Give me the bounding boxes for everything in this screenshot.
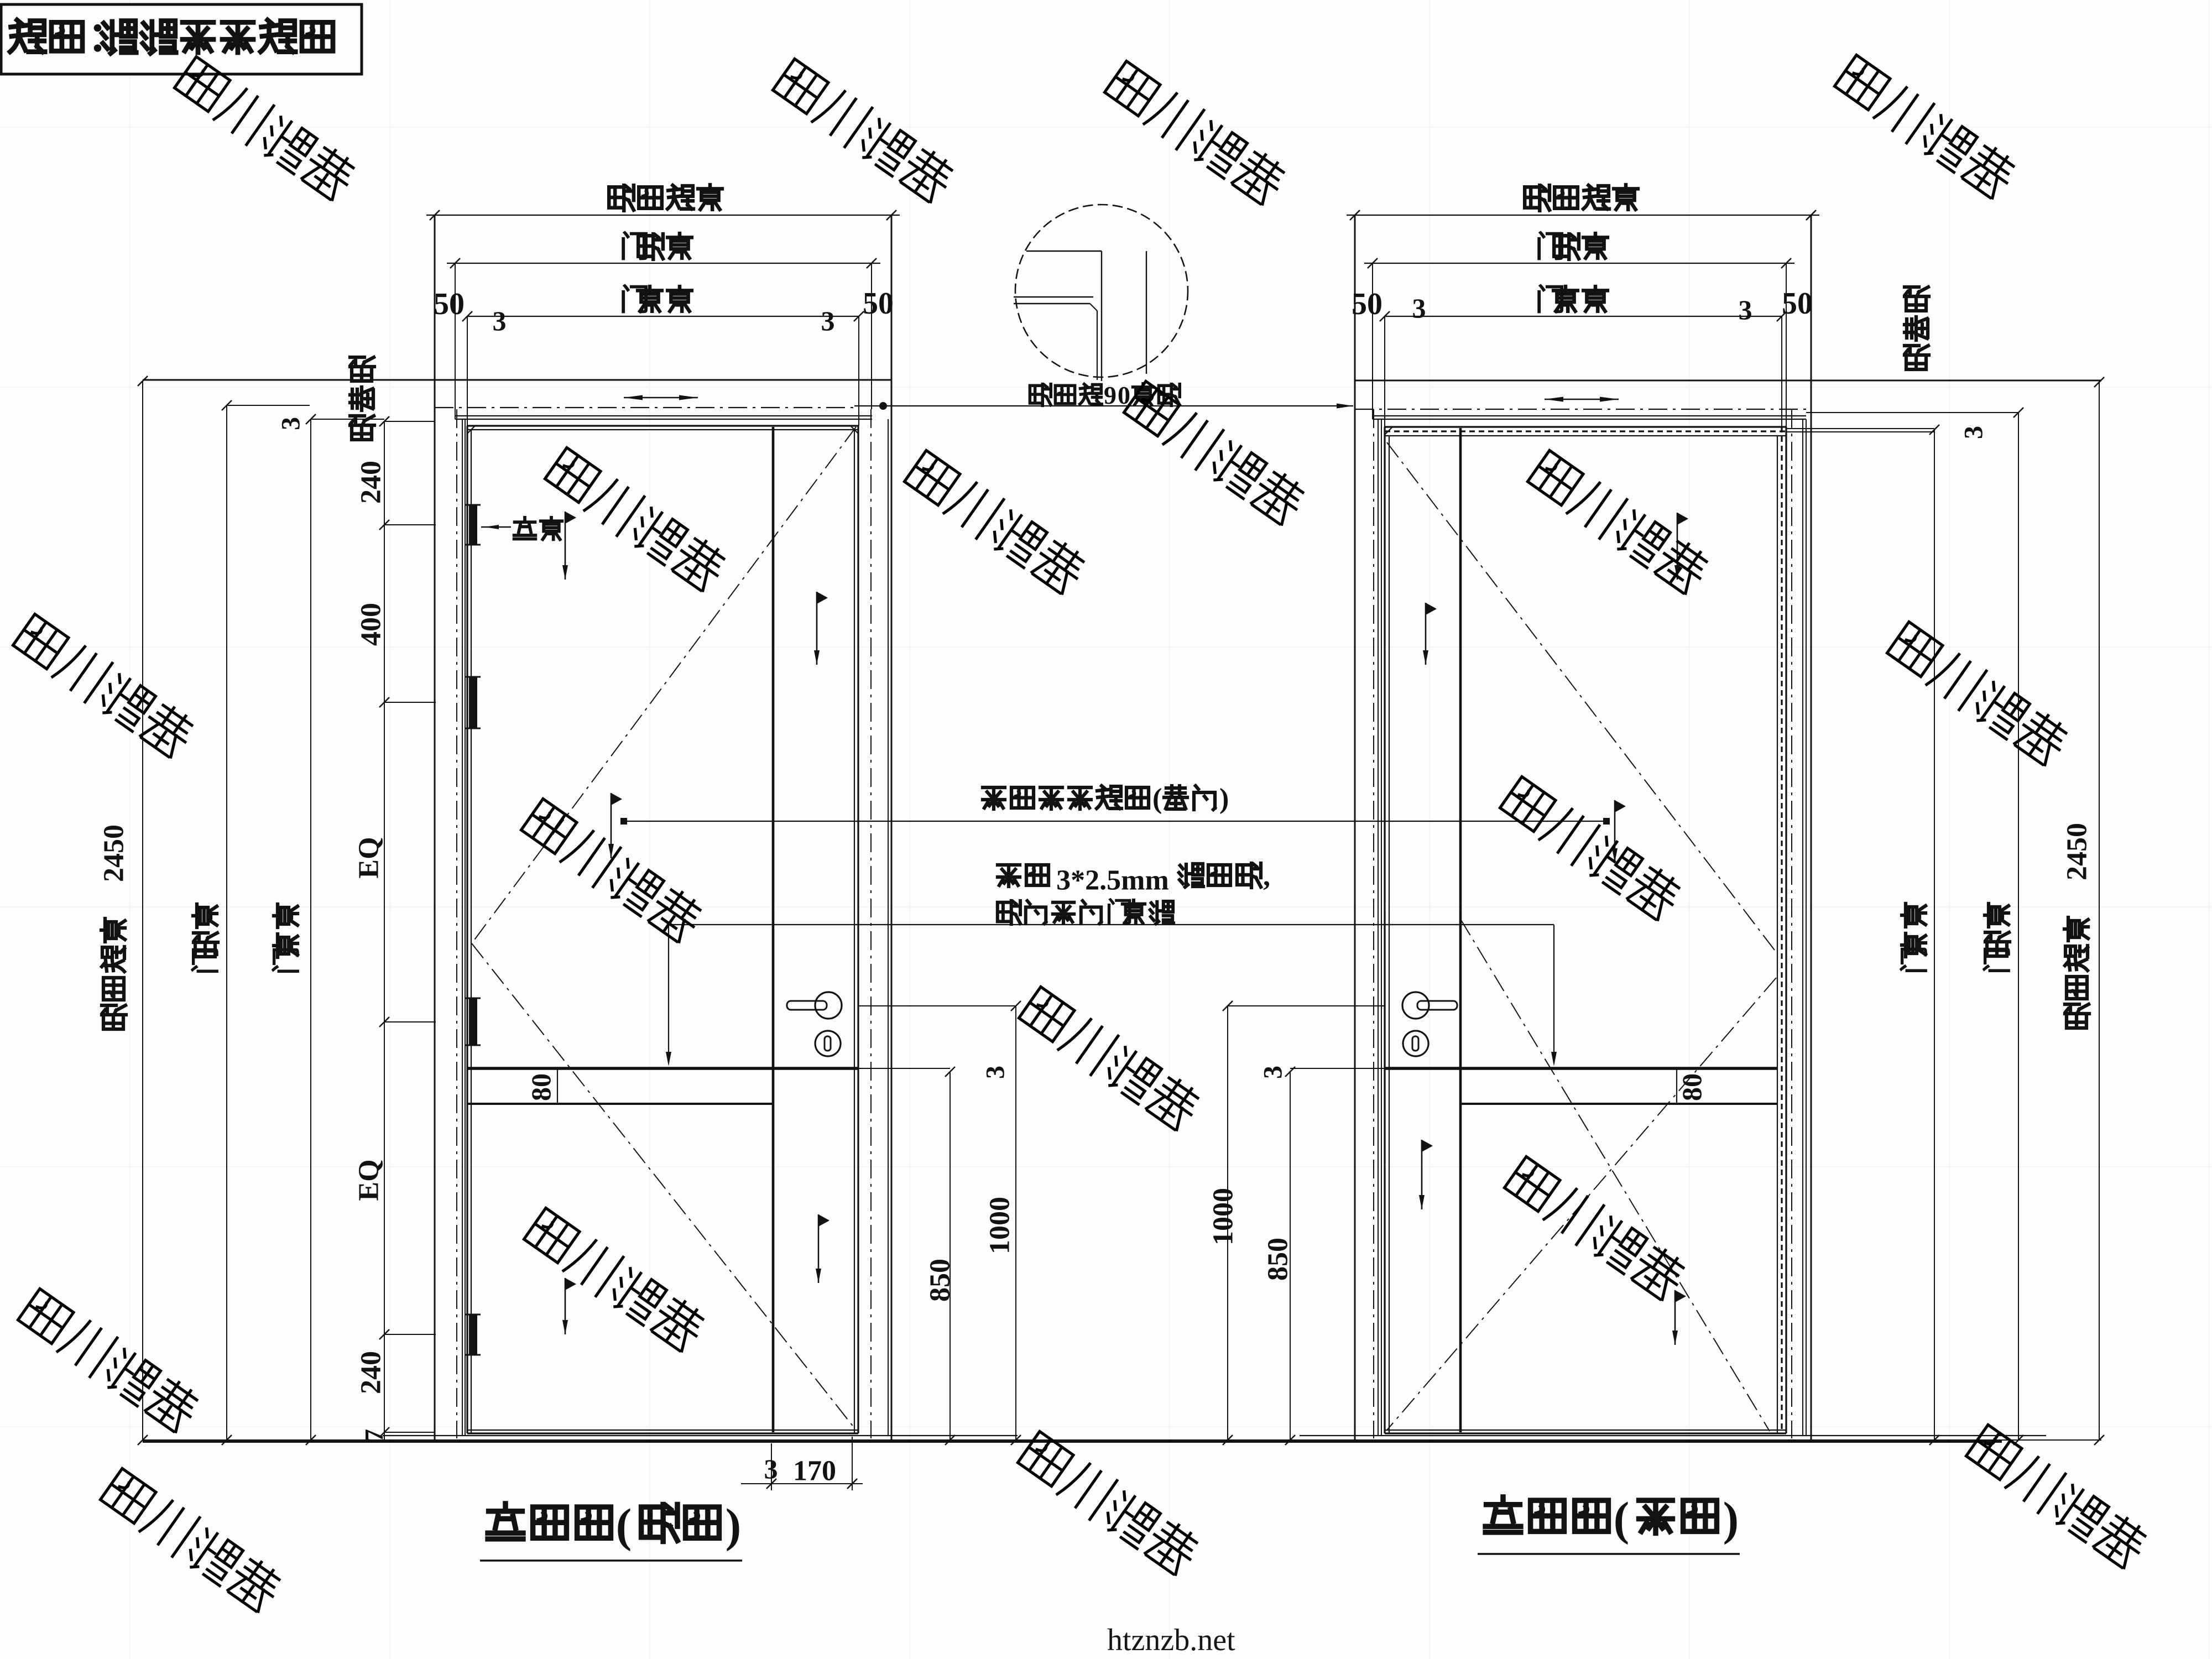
svg-text:(: ( (1614, 1492, 1630, 1545)
svg-text:3: 3 (493, 305, 507, 336)
svg-text:(: ( (1152, 783, 1162, 815)
svg-text:80: 80 (525, 1073, 556, 1101)
svg-text:2450: 2450 (98, 825, 130, 882)
svg-text:1000: 1000 (984, 1197, 1016, 1254)
svg-text:3: 3 (1412, 293, 1426, 324)
svg-text:50: 50 (434, 287, 465, 321)
svg-text:240: 240 (356, 461, 387, 504)
svg-text:(: ( (616, 1499, 632, 1552)
svg-text:EQ: EQ (353, 1159, 385, 1201)
svg-text:): ) (726, 1499, 742, 1552)
svg-text:1000: 1000 (1208, 1188, 1239, 1245)
svg-text:3: 3 (821, 305, 835, 336)
svg-text:240: 240 (356, 1351, 387, 1394)
svg-text:9: 9 (1104, 381, 1117, 409)
svg-text:3: 3 (1959, 426, 1989, 439)
svg-text:3: 3 (764, 1453, 778, 1484)
svg-text:3: 3 (1259, 1066, 1288, 1079)
svg-text:50: 50 (1352, 287, 1383, 321)
svg-text:50: 50 (863, 286, 894, 321)
svg-text:850: 850 (1262, 1238, 1294, 1281)
svg-text:): ) (1219, 783, 1229, 815)
svg-text:850: 850 (925, 1259, 956, 1302)
svg-text:3*2.5mm: 3*2.5mm (1056, 865, 1169, 896)
svg-text:门: 门 (1535, 283, 1566, 317)
svg-text:80: 80 (1676, 1073, 1707, 1101)
svg-text:3: 3 (1739, 294, 1752, 325)
svg-text:htznzb.net: htznzb.net (1107, 1623, 1235, 1657)
svg-text:EQ: EQ (353, 837, 385, 878)
svg-text:170: 170 (793, 1455, 836, 1487)
svg-text:): ) (1723, 1492, 1739, 1545)
svg-text:400: 400 (356, 603, 387, 646)
svg-text:3: 3 (276, 417, 306, 430)
svg-text:3: 3 (981, 1066, 1010, 1079)
svg-text:2450: 2450 (2062, 823, 2093, 880)
svg-text:,: , (1263, 860, 1270, 892)
svg-text:门: 门 (619, 283, 650, 317)
